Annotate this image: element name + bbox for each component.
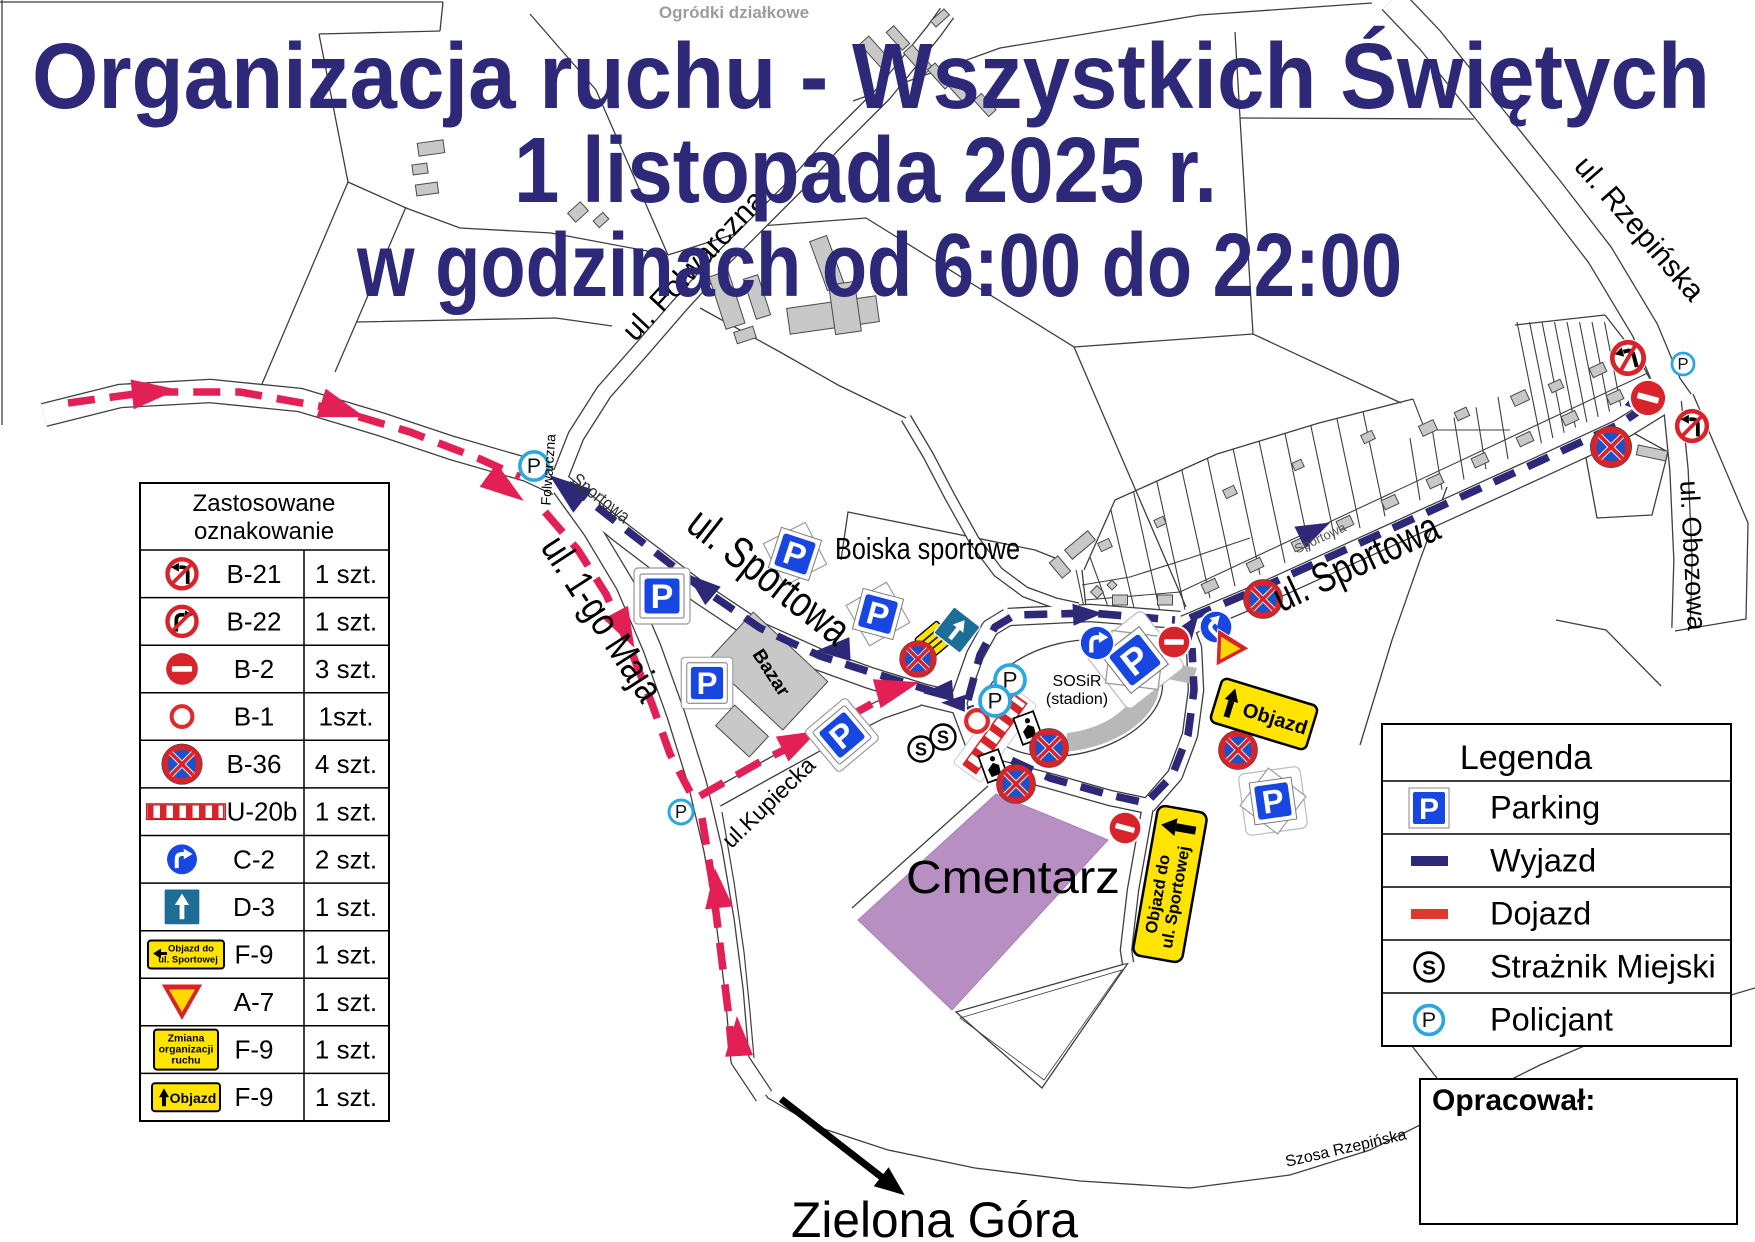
svg-text:F-9: F-9 xyxy=(235,939,274,969)
svg-text:oznakowanie: oznakowanie xyxy=(194,518,334,545)
svg-text:Zielona Góra: Zielona Góra xyxy=(791,1192,1078,1242)
svg-text:Dojazd: Dojazd xyxy=(1490,896,1591,932)
svg-text:Objazd: Objazd xyxy=(170,1090,217,1106)
svg-text:Policjant: Policjant xyxy=(1490,1002,1613,1038)
svg-text:1 szt.: 1 szt. xyxy=(315,1082,377,1112)
svg-text:P: P xyxy=(1419,793,1439,826)
svg-text:F-9: F-9 xyxy=(235,1035,274,1065)
svg-text:ruchu: ruchu xyxy=(171,1055,200,1067)
svg-text:Boiska sportowe: Boiska sportowe xyxy=(835,531,1020,566)
svg-text:A-7: A-7 xyxy=(234,987,274,1017)
svg-text:1 szt.: 1 szt. xyxy=(315,559,377,589)
svg-text:Objazd do: Objazd do xyxy=(168,944,214,955)
svg-text:1 szt.: 1 szt. xyxy=(315,892,377,922)
svg-text:1 szt.: 1 szt. xyxy=(315,797,377,827)
svg-text:Legenda: Legenda xyxy=(1460,739,1592,777)
svg-text:B-22: B-22 xyxy=(227,606,282,636)
svg-text:Wyjazd: Wyjazd xyxy=(1490,843,1596,879)
svg-text:4 szt.: 4 szt. xyxy=(315,749,377,779)
svg-text:Parking: Parking xyxy=(1490,790,1600,826)
svg-text:1 szt.: 1 szt. xyxy=(315,1035,377,1065)
svg-text:w godzinach od 6:00 do 22:00: w godzinach od 6:00 do 22:00 xyxy=(356,216,1402,316)
svg-text:1 szt.: 1 szt. xyxy=(315,987,377,1017)
svg-text:1szt.: 1szt. xyxy=(319,702,374,732)
svg-text:Zastosowane: Zastosowane xyxy=(193,490,336,517)
svg-text:1 szt.: 1 szt. xyxy=(315,606,377,636)
svg-text:Ogródki działkowe: Ogródki działkowe xyxy=(659,3,809,22)
svg-text:Strażnik Miejski: Strażnik Miejski xyxy=(1490,949,1716,985)
svg-text:B-21: B-21 xyxy=(227,559,282,589)
svg-text:D-3: D-3 xyxy=(233,892,275,922)
svg-text:SOSiR: SOSiR xyxy=(1053,673,1102,690)
svg-text:2 szt.: 2 szt. xyxy=(315,844,377,874)
svg-text:Cmentarz: Cmentarz xyxy=(906,851,1120,903)
svg-text:U-20b: U-20b xyxy=(227,797,298,827)
svg-text:B-36: B-36 xyxy=(227,749,282,779)
svg-text:1 listopada 2025 r.: 1 listopada 2025 r. xyxy=(514,118,1217,222)
svg-text:3 szt.: 3 szt. xyxy=(315,654,377,684)
svg-text:C-2: C-2 xyxy=(233,844,275,874)
svg-text:F-9: F-9 xyxy=(235,1082,274,1112)
svg-text:Organizacja ruchu - Wszystkich: Organizacja ruchu - Wszystkich Świętych xyxy=(32,24,1710,128)
svg-text:B-2: B-2 xyxy=(234,654,274,684)
svg-text:(stadion): (stadion) xyxy=(1046,691,1108,708)
svg-text:1 szt.: 1 szt. xyxy=(315,939,377,969)
svg-text:ul. Sportowej: ul. Sportowej xyxy=(158,955,218,966)
svg-text:Opracował:: Opracował: xyxy=(1432,1084,1595,1117)
svg-text:B-1: B-1 xyxy=(234,702,274,732)
